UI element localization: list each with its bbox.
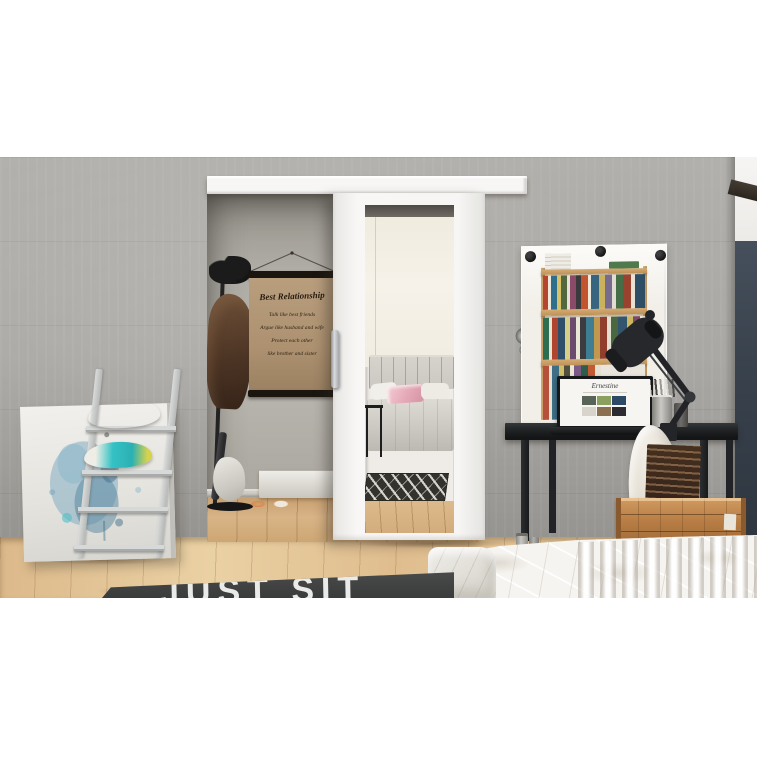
poster-frame-top [248, 271, 336, 278]
poster-line: like brother and sister [249, 351, 335, 357]
door-handle [331, 330, 339, 388]
mirror-reflection-wall [365, 217, 454, 367]
sliding-door [333, 193, 485, 540]
poster-line: Talk like best friends [249, 312, 335, 318]
sandals [245, 497, 295, 510]
poster-line: Argue like husband and wife [249, 325, 335, 331]
floor-sack [212, 456, 246, 502]
poster-canvas: Best Relationship Talk like best friends… [249, 278, 335, 390]
ladder-shelf-board [74, 545, 164, 551]
knit-blanket [578, 533, 757, 598]
ladder-rail [154, 369, 181, 559]
ceiling-corner [735, 157, 757, 247]
ladder-shelf [72, 368, 177, 562]
book-stack-reflection [545, 253, 571, 269]
mirror-reflection-floor [365, 501, 454, 533]
mirror-reflection-stool [365, 405, 383, 457]
crate-label [724, 514, 737, 530]
poster-frame-bottom [248, 390, 336, 397]
ladder-shelf-board [82, 470, 172, 476]
ladder-shelf-board [78, 507, 168, 513]
desk-leg [521, 440, 529, 541]
sliding-door-rail [207, 176, 527, 194]
mirror-reflection-pillow [421, 383, 449, 399]
shoe-box [259, 470, 335, 498]
mirror-reflection-rug [365, 473, 449, 501]
product-page: Best Relationship Talk like best friends… [0, 0, 757, 757]
wall-poster: Best Relationship Talk like best friends… [248, 271, 336, 397]
dark-accent-wall [735, 241, 757, 541]
desk-leg [549, 440, 556, 533]
door-mirror [365, 205, 454, 533]
room-photo: Best Relationship Talk like best friends… [0, 157, 757, 598]
poster-title: Best Relationship [249, 290, 335, 303]
poster-line: Protect each other [249, 338, 335, 344]
mirror-reflection-pink-pillow [386, 384, 423, 404]
mirror-reflection-ceiling [365, 205, 454, 217]
